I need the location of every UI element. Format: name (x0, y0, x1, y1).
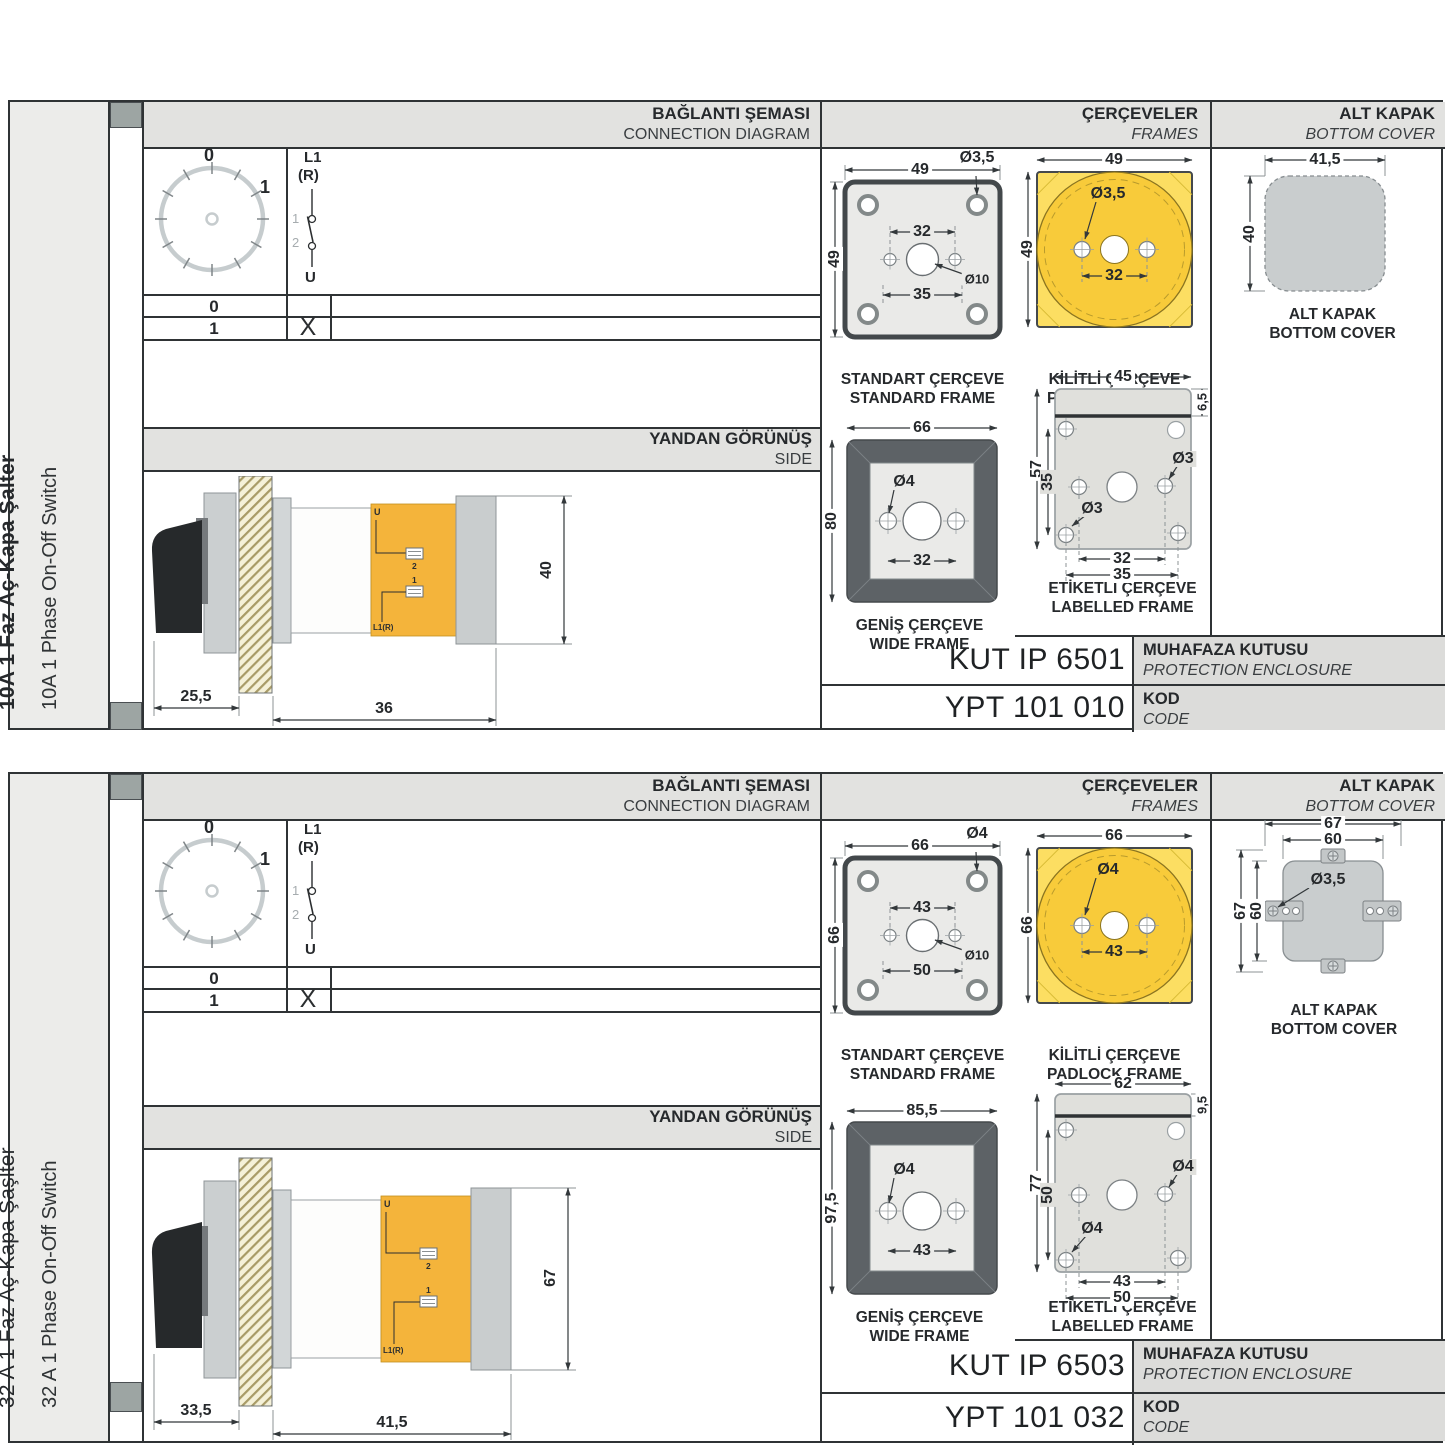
table-row-1: 1 (142, 991, 286, 1011)
bottom-cover-label: ALT KAPAK BOTTOM COVER (1223, 1001, 1445, 1040)
labelled-frame-label-en: LABELLED FRAME (1030, 598, 1215, 617)
table-line (142, 294, 820, 296)
body-1-label: 1 (426, 1285, 431, 1295)
side-view-drawing: U 2 1 L1(R) 25,5 36 40 (144, 476, 594, 726)
code-label-en: CODE (1143, 710, 1445, 731)
dim-strip-height: 9,5 (1196, 1093, 1209, 1117)
body-u-label: U (384, 1199, 391, 1209)
dim-frame-width: 49 (1102, 152, 1126, 168)
rear-plate (273, 498, 291, 643)
code-label-tr: KOD (1143, 1397, 1445, 1418)
dim-hole-spacing: 43 (910, 900, 934, 916)
bottom-cover-label-tr: ALT KAPAK (1220, 305, 1445, 324)
dial-position-1: 1 (260, 849, 270, 870)
header-band-border (142, 147, 1445, 149)
dim-body-height: 40 (539, 558, 555, 582)
cover-header-tr: ALT KAPAK (1339, 104, 1435, 125)
product-code: YPT 101 032 (825, 1394, 1125, 1441)
code-label-tr: KOD (1143, 689, 1445, 710)
body-l1r-label: L1(R) (373, 623, 393, 632)
padlock-frame-label-tr: KİLİTLİ ÇERÇEVE (1022, 1046, 1207, 1065)
dim-hole-top: Ø4 (1169, 1159, 1196, 1175)
dim-cover-width-inner: 60 (1321, 832, 1345, 848)
wide-frame: 85,5 97,5 Ø4 43 GENİŞ ÇERÇEVE WIDE FRAME (822, 1104, 1017, 1349)
dim-hole-bottom: Ø4 (1078, 1221, 1105, 1237)
enclosure-label-en: PROTECTION ENCLOSURE (1143, 661, 1445, 682)
standard-frame: 49 Ø3,5 49 32 Ø10 35 STANDART ÇERÇEVE ST… (825, 152, 1020, 412)
product-code: YPT 101 010 (825, 686, 1125, 730)
dim-cover-height-outer: 67 (1233, 899, 1249, 923)
dial-position-0: 0 (204, 145, 214, 166)
dim-hole-top: Ø3 (1169, 451, 1196, 467)
standard-frame-label: STANDART ÇERÇEVE STANDARD FRAME (825, 1046, 1020, 1085)
table-row-1: 1 (142, 319, 286, 339)
body-2-label: 2 (412, 561, 417, 571)
body-2-label: 2 (426, 1261, 431, 1271)
dim-cover-height-inner: 60 (1249, 899, 1265, 923)
dim-row-spacing: 35 (1040, 470, 1056, 494)
dim-hole-spacing: 32 (1110, 551, 1134, 567)
padlock-frame-drawing (1022, 150, 1207, 367)
product-title-en: 32 A 1 Phase On-Off Switch (39, 1160, 62, 1408)
bottom-cover-label: ALT KAPAK BOTTOM COVER (1220, 305, 1445, 344)
wide-frame-drawing (822, 420, 1017, 615)
contact-2-label: 2 (292, 907, 299, 922)
dim-hole: Ø4 (890, 1162, 917, 1178)
wide-frame-label-tr: GENİŞ ÇERÇEVE (822, 616, 1017, 635)
enclosure-label-tr: MUHAFAZA KUTUSU (1143, 640, 1445, 661)
dial-position-0: 0 (204, 817, 214, 838)
dim-outer-spacing: 35 (910, 287, 934, 303)
bottom-cover-label-en: BOTTOM COVER (1223, 1020, 1445, 1039)
dial-drawing (144, 821, 284, 964)
wide-frame-label-tr: GENİŞ ÇERÇEVE (822, 1308, 1017, 1327)
dim-hole-bottom: Ø3 (1078, 501, 1105, 517)
dim-hole-spacing: 43 (910, 1243, 934, 1259)
contact-2-label: 2 (292, 235, 299, 250)
dim-frame-height: 49 (1020, 237, 1036, 261)
dim-body-height: 67 (543, 1266, 559, 1290)
panel-wall (239, 1158, 272, 1406)
switch-body (291, 1200, 381, 1358)
connection-header: BAĞLANTI ŞEMASI CONNECTION DIAGRAM (150, 774, 818, 819)
product-title-tr: 10A 1 Faz Aç-Kapa Şalter (0, 455, 20, 710)
table-x-mark: X (286, 985, 330, 1014)
dim-frame-width: 66 (908, 838, 932, 854)
dim-outer-spacing: 50 (1110, 1290, 1134, 1306)
front-bezel (204, 1181, 236, 1378)
dim-hole-spacing: 43 (1102, 944, 1126, 960)
corner-marker-bottom (110, 702, 142, 730)
switch-side-view (144, 1156, 594, 1441)
labelled-frame-label-en: LABELLED FRAME (1030, 1317, 1215, 1336)
connection-header-en: CONNECTION DIAGRAM (623, 797, 810, 817)
dim-corner-hole: Ø3,5 (957, 150, 998, 166)
side-header-tr: YANDAN GÖRÜNÜŞ (649, 1107, 812, 1128)
dim-frame-height: 66 (827, 923, 843, 947)
standard-frame: 66 Ø4 66 43 Ø10 50 STANDART ÇERÇEVE STAN… (825, 828, 1020, 1088)
dim-outer-spacing: 35 (1110, 567, 1134, 583)
dim-body-depth: 36 (372, 701, 396, 717)
position-dial: 0 1 (144, 821, 284, 964)
body-u-label: U (374, 507, 381, 517)
dim-frame-height: 80 (824, 509, 840, 533)
bottom-cover-label-tr: ALT KAPAK (1223, 1001, 1445, 1020)
cover-header-en: BOTTOM COVER (1306, 797, 1436, 817)
frames-header-en: FRAMES (1131, 797, 1198, 817)
dial-drawing (144, 149, 284, 292)
table-line (142, 339, 820, 341)
end-cap (471, 1188, 511, 1370)
product-sidebar: 32 A 1 Faz Aç-Kapa Şaşlter 32 A 1 Phase … (10, 774, 110, 1441)
enclosure-label-cell: MUHAFAZA KUTUSU PROTECTION ENCLOSURE (1134, 637, 1445, 684)
labelled-frame: 62 9,5 77 50 Ø4 Ø4 43 50 ETİKETLİ ÇERÇEV… (1030, 1074, 1215, 1342)
dim-frame-width: 66 (910, 420, 934, 436)
table-x-mark: X (286, 313, 330, 342)
code-label-en: CODE (1143, 1418, 1445, 1439)
terminal-u-label: U (305, 941, 316, 958)
contact-1-label: 1 (292, 211, 299, 226)
terminal-l1-label: L1 (304, 149, 322, 166)
panel-wall (239, 476, 272, 693)
standard-frame-label-en: STANDARD FRAME (825, 1065, 1020, 1084)
dim-front-depth: 25,5 (177, 689, 214, 705)
standard-frame-drawing (825, 828, 1020, 1043)
code-label-cell: KOD CODE (1134, 1394, 1445, 1441)
enclosure-label-cell: MUHAFAZA KUTUSU PROTECTION ENCLOSURE (1134, 1341, 1445, 1392)
dim-frame-width: 62 (1111, 1076, 1135, 1092)
side-header-tr: YANDAN GÖRÜNÜŞ (649, 429, 812, 450)
cover-shape (1265, 176, 1385, 291)
side-view-drawing: U 2 1 L1(R) 33,5 41,5 67 (144, 1156, 594, 1441)
dim-center-hole: Ø10 (962, 949, 993, 962)
terminal-l1-label: L1 (304, 821, 322, 838)
dim-hole: Ø4 (890, 474, 917, 490)
dim-center-hole: Ø10 (962, 273, 993, 286)
standard-frame-label-en: STANDARD FRAME (825, 389, 1020, 408)
connection-header-en: CONNECTION DIAGRAM (623, 125, 810, 145)
side-header-en: SIDE (775, 1128, 812, 1148)
side-header-en: SIDE (775, 450, 812, 470)
padlock-frame: 66 66 Ø4 43 KİLİTLİ ÇERÇEVE PADLOCK FRAM… (1022, 826, 1207, 1088)
connection-header-tr: BAĞLANTI ŞEMASI (652, 776, 810, 797)
side-view-header: YANDAN GÖRÜNÜŞ SIDE (144, 1105, 820, 1150)
switch-body (291, 508, 371, 633)
connection-header: BAĞLANTI ŞEMASI CONNECTION DIAGRAM (150, 102, 818, 147)
frames-header: ÇERÇEVELER FRAMES (824, 774, 1206, 819)
frames-header-tr: ÇERÇEVELER (1082, 776, 1198, 797)
standard-frame-label-tr: STANDART ÇERÇEVE (825, 1046, 1020, 1065)
side-view-header: YANDAN GÖRÜNÜŞ SIDE (144, 427, 820, 472)
enclosure-code: KUT IP 6503 (825, 1341, 1125, 1390)
corner-marker-top (110, 102, 142, 128)
terminal-r-label: (R) (298, 167, 319, 184)
code-label-cell: KOD CODE (1134, 686, 1445, 730)
labelled-frame-label: ETİKETLİ ÇERÇEVE LABELLED FRAME (1030, 579, 1215, 618)
product-card-32a: 32 A 1 Faz Aç-Kapa Şaşlter 32 A 1 Phase … (8, 772, 1443, 1443)
bottom-cover-label-en: BOTTOM COVER (1220, 324, 1445, 343)
dim-cover-width-outer: 67 (1321, 816, 1345, 832)
dial-position-1: 1 (260, 177, 270, 198)
cover-header-en: BOTTOM COVER (1306, 125, 1436, 145)
terminal-u-label: U (305, 269, 316, 286)
frames-header-en: FRAMES (1131, 125, 1198, 145)
padlock-frame-drawing (1022, 826, 1207, 1043)
dim-row-spacing: 50 (1040, 1183, 1056, 1207)
pole-schematic: L1 (R) 1 2 U (288, 821, 334, 964)
wide-frame: 66 80 Ø4 32 GENİŞ ÇERÇEVE WIDE FRAME (822, 420, 1017, 660)
dim-frame-height: 49 (827, 247, 843, 271)
dim-frame-width: 45 (1111, 369, 1135, 385)
standard-frame-drawing (825, 152, 1020, 367)
contact-1-label: 1 (292, 883, 299, 898)
table-row-0: 0 (142, 297, 286, 317)
table-line (330, 966, 332, 1013)
dim-cover-width: 41,5 (1306, 152, 1343, 168)
catalog-page: 10A 1 Faz Aç-Kapa Şalter 10A 1 Phase On-… (0, 0, 1445, 1445)
dim-hole-spacing: 32 (910, 224, 934, 240)
table-row-0: 0 (142, 969, 286, 989)
enclosure-label-en: PROTECTION ENCLOSURE (1143, 1365, 1445, 1386)
table-line (330, 294, 332, 341)
table-line (142, 1011, 820, 1013)
dim-frame-height: 97,5 (824, 1189, 840, 1226)
dim-cover-height: 40 (1242, 222, 1258, 246)
bottom-cover: 67 60 67 60 Ø3,5 ALT KAPAK BOTTOM COVER (1223, 816, 1445, 1051)
enclosure-code: KUT IP 6501 (825, 637, 1125, 682)
dim-frame-height: 66 (1020, 913, 1036, 937)
cover-header: ALT KAPAK BOTTOM COVER (1214, 774, 1443, 819)
corner-marker-top (110, 774, 142, 800)
dim-strip-height: 6,5 (1196, 390, 1209, 414)
labelled-frame: 45 6,5 57 35 Ø3 Ø3 32 35 ETİKETLİ ÇERÇEV… (1030, 367, 1215, 625)
front-bezel (204, 493, 236, 653)
dim-frame-width: 66 (1102, 828, 1126, 844)
product-title-tr: 32 A 1 Faz Aç-Kapa Şaşlter (0, 1147, 20, 1408)
connection-header-tr: BAĞLANTI ŞEMASI (652, 104, 810, 125)
wide-frame-drawing (822, 1104, 1017, 1304)
position-dial: 0 1 (144, 149, 284, 292)
dim-cover-hole: Ø3,5 (1308, 872, 1349, 888)
pole-schematic: L1 (R) 1 2 U (288, 149, 334, 292)
knob-handle (152, 520, 202, 633)
dim-front-depth: 33,5 (177, 1403, 214, 1419)
table-line (142, 966, 820, 968)
knob-handle (152, 1222, 202, 1348)
dim-body-depth: 41,5 (373, 1415, 410, 1431)
dim-outer-spacing: 50 (910, 963, 934, 979)
dim-frame-width: 49 (908, 162, 932, 178)
dim-hole-spacing: 32 (910, 553, 934, 569)
rear-plate (273, 1190, 291, 1368)
corner-marker-bottom (110, 1382, 142, 1412)
terminal-r-label: (R) (298, 839, 319, 856)
standard-frame-label: STANDART ÇERÇEVE STANDARD FRAME (825, 370, 1020, 409)
dim-hole: Ø4 (1094, 862, 1121, 878)
standard-frame-label-tr: STANDART ÇERÇEVE (825, 370, 1020, 389)
product-title-en: 10A 1 Phase On-Off Switch (39, 467, 62, 710)
frames-header: ÇERÇEVELER FRAMES (824, 102, 1206, 147)
dim-corner-hole: Ø4 (963, 826, 990, 842)
body-l1r-label: L1(R) (383, 1346, 403, 1355)
cover-header: ALT KAPAK BOTTOM COVER (1214, 102, 1443, 147)
cover-header-tr: ALT KAPAK (1339, 776, 1435, 797)
end-cap (456, 496, 496, 644)
dim-hole-spacing: 43 (1110, 1274, 1134, 1290)
product-card-10a: 10A 1 Faz Aç-Kapa Şalter 10A 1 Phase On-… (8, 100, 1443, 730)
dim-hole-spacing: 32 (1102, 268, 1126, 284)
frames-header-tr: ÇERÇEVELER (1082, 104, 1198, 125)
bottom-cover: 41,5 40 ALT KAPAK BOTTOM COVER (1220, 150, 1445, 350)
enclosure-label-tr: MUHAFAZA KUTUSU (1143, 1344, 1445, 1365)
dim-frame-width: 85,5 (903, 1103, 940, 1119)
body-1-label: 1 (412, 575, 417, 585)
dim-hole: Ø3,5 (1088, 186, 1129, 202)
product-sidebar: 10A 1 Faz Aç-Kapa Şalter 10A 1 Phase On-… (10, 102, 110, 728)
